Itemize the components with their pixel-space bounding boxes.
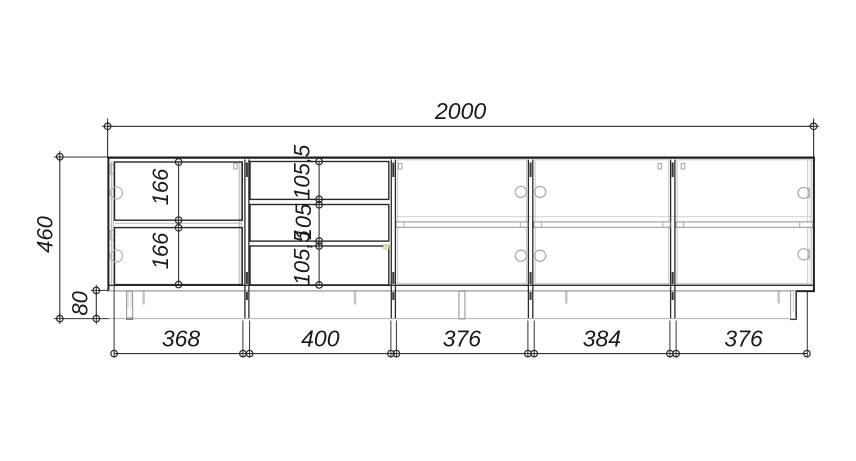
svg-text:460: 460 [33, 215, 58, 252]
svg-text:368: 368 [162, 326, 201, 352]
svg-text:105,5: 105,5 [290, 144, 315, 200]
svg-text:376: 376 [443, 326, 482, 352]
svg-text:105,5: 105,5 [290, 230, 315, 286]
svg-text:166: 166 [148, 168, 173, 205]
svg-text:80: 80 [68, 290, 93, 315]
svg-text:166: 166 [148, 232, 173, 269]
svg-text:2000: 2000 [434, 98, 486, 124]
svg-text:376: 376 [724, 326, 763, 352]
svg-text:384: 384 [583, 326, 621, 352]
svg-text:400: 400 [301, 326, 340, 352]
